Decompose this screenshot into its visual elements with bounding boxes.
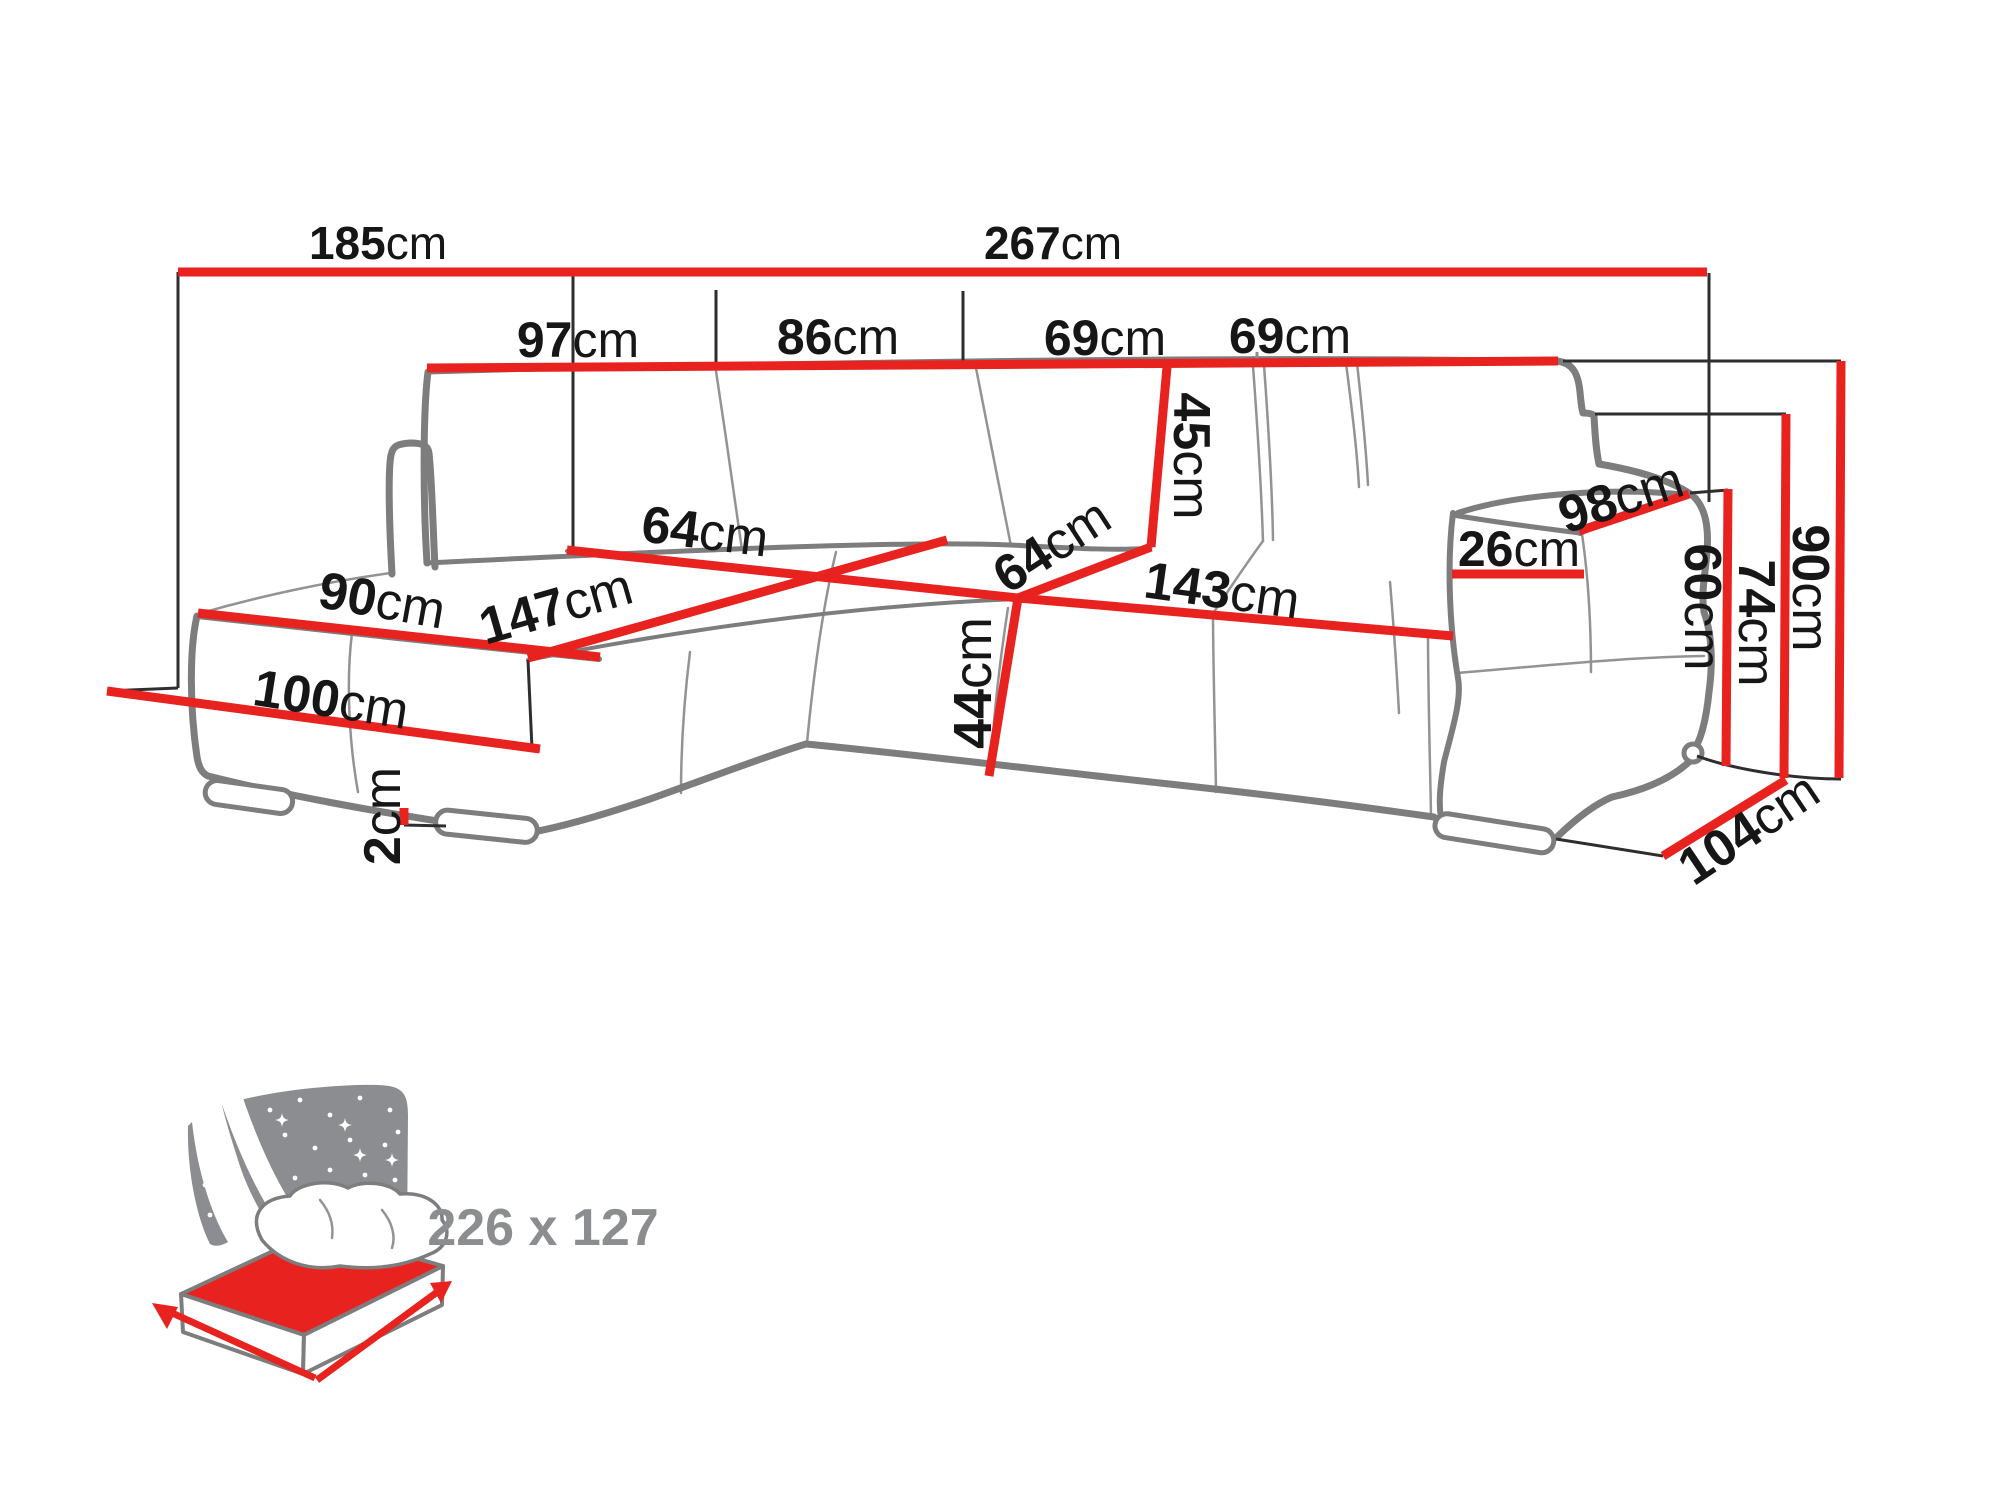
- dimension-line-64-left: [567, 550, 1018, 598]
- front-corner-edge: [533, 744, 806, 832]
- floor-ext-line: [1697, 756, 1841, 779]
- armrest-seam: [1582, 534, 1591, 672]
- sleeping-area-icon: 226 x 127: [152, 1082, 659, 1380]
- star-dot: [363, 1173, 368, 1178]
- dim-label-44: 44cm: [943, 617, 1003, 749]
- star-sparkle: [243, 1203, 257, 1217]
- star-dot: [358, 1096, 363, 1101]
- dimension-labels: 185cm 267cm 97cm 86cm 69cm 69cm 45cm 64c…: [249, 217, 1839, 897]
- dim-label-back-69a: 69cm: [1044, 310, 1166, 366]
- dim-label-74: 74cm: [1727, 559, 1785, 686]
- backrest-seam: [1253, 366, 1263, 541]
- star-dot: [248, 1138, 253, 1143]
- star-dot: [328, 1168, 333, 1173]
- depth-ext-line: [1556, 839, 1663, 856]
- sofa-foot: [1684, 744, 1702, 762]
- armrest-seam: [1458, 656, 1704, 673]
- dim-label-60: 60cm: [1673, 543, 1731, 670]
- chaise-front-seam: [681, 652, 690, 793]
- sleeping-area-label: 226 x 127: [427, 1199, 658, 1257]
- armrest-bottom-edge: [1612, 761, 1690, 797]
- star-dot: [238, 1188, 243, 1193]
- dim-label-back-97: 97cm: [517, 312, 639, 368]
- backrest-seam: [1264, 365, 1273, 540]
- dim-label-90-height: 90cm: [1781, 524, 1839, 651]
- star-dot: [198, 1148, 203, 1153]
- star-dot: [241, 1113, 246, 1118]
- front-face-seam: [1428, 633, 1431, 815]
- armrest-inner-edge: [1440, 513, 1459, 818]
- star-dot: [268, 1108, 273, 1113]
- chaise-left-edge: [191, 616, 208, 776]
- sofa-dimension-diagram: 185cm 267cm 97cm 86cm 69cm 69cm 45cm 64c…: [0, 0, 2000, 1499]
- star-dot: [393, 1178, 398, 1183]
- backrest-left-edge: [424, 372, 428, 563]
- dim-label-back-86: 86cm: [777, 309, 899, 365]
- star-dot: [388, 1108, 393, 1113]
- diagram-page: 185cm 267cm 97cm 86cm 69cm 69cm 45cm 64c…: [0, 0, 2000, 1499]
- star-dot: [203, 1183, 208, 1188]
- sofa-bottom-edge: [806, 744, 1434, 817]
- star-dot: [328, 1113, 333, 1118]
- backrest-right-step: [1557, 361, 1599, 464]
- sofa-leg: [1433, 812, 1555, 854]
- dim-label-total-left: 185cm: [309, 217, 447, 269]
- sofa-leg: [204, 779, 294, 815]
- backrest-seam: [976, 368, 1011, 546]
- height-ext-line: [1690, 490, 1728, 493]
- star-dot: [348, 1138, 353, 1143]
- seat-armrest-seam: [1390, 582, 1399, 713]
- dim-label-26: 26cm: [1458, 521, 1580, 577]
- headboard-sliver: [188, 1122, 228, 1246]
- star-dot: [283, 1133, 288, 1138]
- dim-label-2: 2cm: [354, 767, 412, 865]
- star-dot: [396, 1130, 401, 1135]
- dim-label-45: 45cm: [1162, 392, 1220, 519]
- star-dot: [298, 1098, 303, 1103]
- star-dot: [313, 1146, 318, 1151]
- star-dot: [383, 1143, 388, 1148]
- floor-ext-line: [528, 660, 532, 749]
- dim-label-143: 143cm: [1141, 551, 1304, 630]
- front-face-seam: [1213, 612, 1216, 792]
- dim-label-total-right: 267cm: [984, 217, 1122, 269]
- corner-foot-edge: [1558, 797, 1612, 836]
- duvet: [257, 1183, 447, 1268]
- dim-label-100: 100cm: [249, 659, 412, 741]
- sofa-leg: [434, 809, 538, 844]
- dim-label-back-69b: 69cm: [1229, 308, 1351, 364]
- star-dot: [258, 1163, 263, 1168]
- dim-label-104: 104cm: [1668, 761, 1830, 896]
- star-dot: [208, 1213, 213, 1218]
- dim-label-147: 147cm: [473, 558, 639, 657]
- backrest-seam: [1346, 363, 1359, 487]
- star-dot: [293, 1176, 298, 1181]
